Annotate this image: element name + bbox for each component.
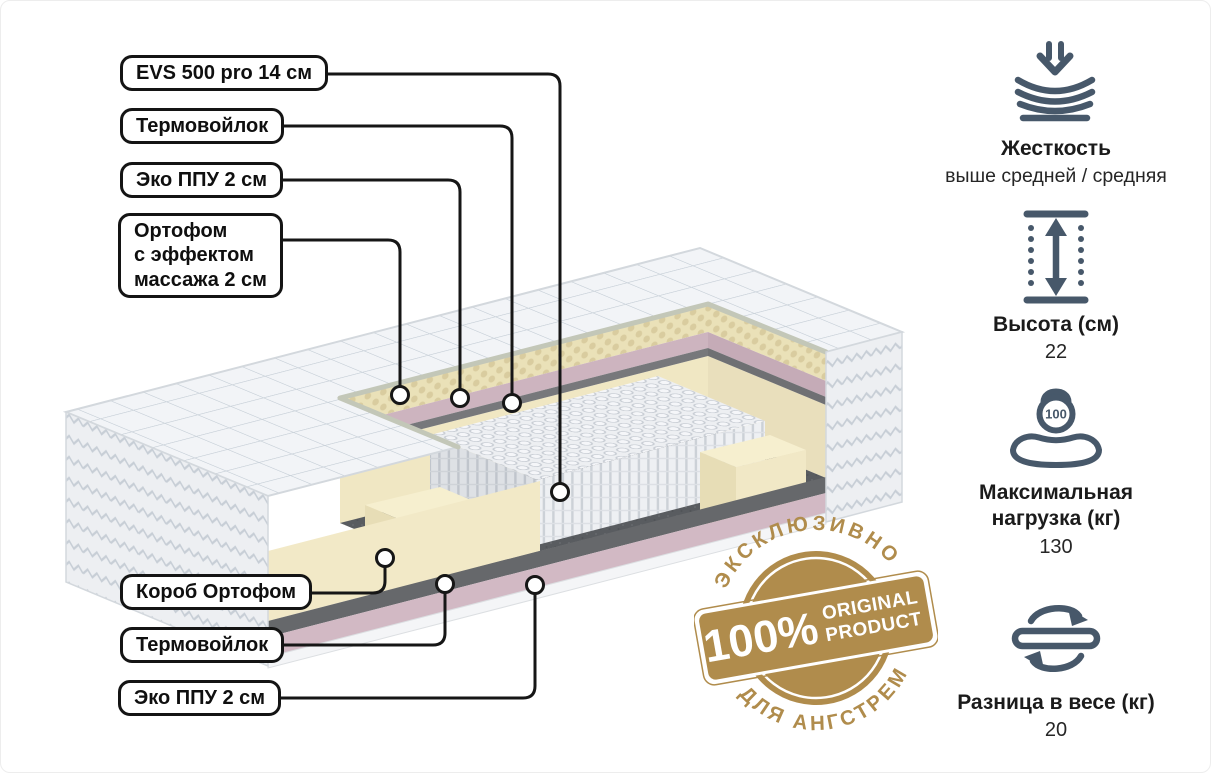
height-icon	[1017, 208, 1095, 306]
flip-icon	[1006, 592, 1106, 684]
label-korob-ortofom: Короб Ортофом	[120, 574, 312, 610]
side-panel-right	[826, 332, 902, 522]
max-load-icon: 100	[1006, 380, 1106, 474]
spec-height-value: 22	[933, 340, 1179, 365]
spec-panel: Жесткость выше средней / средняя Высота …	[933, 0, 1179, 773]
label-thermo-top: Термовойлок	[120, 108, 284, 144]
kettlebell-number: 100	[1045, 407, 1067, 422]
label-thermo-bottom: Термовойлок	[120, 627, 284, 663]
firmness-icon	[1010, 40, 1102, 130]
callout-dot-eco-top	[452, 390, 469, 407]
label-ortofom: Ортофом с эффектом массажа 2 см	[118, 213, 283, 298]
callout-dot-korob	[377, 550, 394, 567]
spec-max-load-value: 130	[933, 535, 1179, 560]
callout-dot-ortofom	[392, 387, 409, 404]
callout-dot-evs	[552, 484, 569, 501]
callout-dot-thermo-bottom	[437, 576, 454, 593]
spec-weight-diff-value: 20	[933, 718, 1179, 743]
callout-dot-thermo-top	[504, 395, 521, 412]
callout-dot-eco-bottom	[527, 577, 544, 594]
spec-firmness-value: выше средней / средняя	[933, 164, 1179, 188]
spec-weight-diff: Разница в весе (кг) 20	[933, 592, 1179, 743]
spec-firmness-title: Жесткость	[933, 136, 1179, 162]
spec-max-load: 100 Максимальная нагрузка (кг) 130	[933, 380, 1179, 560]
spec-firmness: Жесткость выше средней / средняя	[933, 40, 1179, 189]
label-eco-ppu-bottom: Эко ППУ 2 см	[118, 680, 281, 716]
authenticity-badge: ЭКСКЛЮЗИВНО ДЛЯ АНГСТРЕМ 100% ORIGINAL P…	[694, 504, 938, 752]
label-evs-500: EVS 500 pro 14 см	[120, 55, 328, 91]
label-eco-ppu-top: Эко ППУ 2 см	[120, 162, 283, 198]
spec-max-load-title: Максимальная нагрузка (кг)	[933, 480, 1179, 533]
spec-height: Высота (см) 22	[933, 208, 1179, 365]
spec-weight-diff-title: Разница в весе (кг)	[933, 690, 1179, 716]
spec-height-title: Высота (см)	[933, 312, 1179, 338]
